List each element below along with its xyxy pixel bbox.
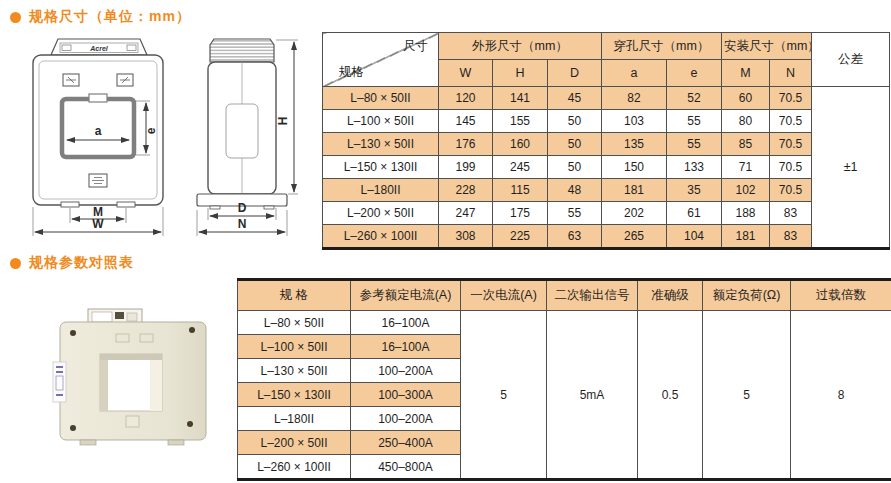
section-title-parameters: 规格参数对照表: [10, 254, 134, 272]
primary-current-cell: 5: [461, 311, 547, 480]
dim-cell: 50: [548, 133, 602, 156]
current-cell: 250–400A: [351, 431, 461, 455]
side-view-drawing: H D N: [180, 36, 306, 238]
spec-cell: L–180II: [238, 407, 351, 431]
dim-cell: 141: [493, 87, 548, 110]
dim-cell: 150: [602, 156, 667, 179]
col-header-m: M: [722, 60, 770, 87]
dim-cell: 48: [548, 179, 602, 202]
param-header-primary: 一次电流(A): [461, 280, 547, 311]
col-header-e: e: [667, 60, 722, 87]
current-cell: 100–300A: [351, 383, 461, 407]
param-header-secondary: 二次输出信号: [547, 280, 638, 311]
accuracy-class-cell: 0.5: [638, 311, 703, 480]
param-header-load: 额定负荷(Ω): [703, 280, 791, 311]
col-header-n: N: [770, 60, 812, 87]
dim-label-d: D: [238, 201, 247, 215]
dim-cell: 102: [722, 179, 770, 202]
current-cell: 450–800A: [351, 455, 461, 480]
dim-label-w: W: [92, 217, 104, 231]
dim-cell: 202: [602, 202, 667, 225]
photo-side-label: [53, 362, 66, 402]
dim-cell: 175: [493, 202, 548, 225]
group-header-mount: 安装尺寸（mm）: [722, 33, 812, 60]
current-cell: 16–100A: [351, 311, 461, 335]
group-header-hole: 穿孔尺寸（mm）: [602, 33, 722, 60]
terminal-screw-icon: [63, 74, 79, 86]
corner-dim-label: 尺寸: [403, 38, 428, 55]
dim-cell: 70.5: [770, 110, 812, 133]
dim-cell: 181: [602, 179, 667, 202]
spec-cell: L–80 × 50II: [323, 87, 439, 110]
dim-cell: 120: [439, 87, 493, 110]
dim-cell: 199: [439, 156, 493, 179]
spec-cell: L–100 × 50II: [323, 110, 439, 133]
dim-cell: 245: [493, 156, 548, 179]
group-header-outline: 外形尺寸（mm）: [439, 33, 602, 60]
dim-label-n: N: [238, 217, 247, 231]
tolerance-header: 公差: [812, 33, 890, 87]
section-title-dimensions: 规格尺寸（单位：mm）: [10, 8, 191, 26]
product-photo: [52, 306, 220, 454]
dim-cell: 176: [439, 133, 493, 156]
dim-cell: 50: [548, 156, 602, 179]
param-header-spec: 规 格: [238, 280, 351, 311]
rated-load-cell: 5: [703, 311, 791, 480]
dimension-table: 尺寸 规格 外形尺寸（mm） 穿孔尺寸（mm） 安装尺寸（mm） 公差 W H …: [322, 32, 890, 250]
dim-cell: 83: [770, 225, 812, 249]
dim-cell: 61: [667, 202, 722, 225]
param-header-overload: 过载倍数: [791, 280, 891, 311]
dim-cell: 85: [722, 133, 770, 156]
dim-cell: 80: [722, 110, 770, 133]
dim-cell: 50: [548, 110, 602, 133]
spec-cell: L–150 × 130II: [238, 383, 351, 407]
table-row: L–130 × 50II 176 160 50 135 55 85 70.5: [323, 133, 890, 156]
spec-cell: L–260 × 100II: [323, 225, 439, 249]
dim-cell: 70.5: [770, 156, 812, 179]
dim-cell: 135: [602, 133, 667, 156]
dim-cell: 265: [602, 225, 667, 249]
col-header-w: W: [439, 60, 493, 87]
col-header-h: H: [493, 60, 548, 87]
dim-cell: 70.5: [770, 133, 812, 156]
dim-cell: 83: [770, 202, 812, 225]
dim-label-h: H: [276, 117, 290, 126]
dim-cell: 55: [667, 133, 722, 156]
corner-header-cell: 尺寸 规格: [323, 33, 439, 87]
table-row: L–150 × 130II 199 245 50 150 133 71 70.5: [323, 156, 890, 179]
dim-cell: 155: [493, 110, 548, 133]
col-header-a: a: [602, 60, 667, 87]
current-cell: 100–200A: [351, 359, 461, 383]
section-title-text: 规格尺寸（单位：mm）: [29, 8, 191, 26]
dim-cell: 103: [602, 110, 667, 133]
dim-cell: 104: [667, 225, 722, 249]
col-header-d: D: [548, 60, 602, 87]
table-row: L–200 × 50II 247 175 55 202 61 188 83: [323, 202, 890, 225]
spec-cell: L–150 × 130II: [323, 156, 439, 179]
corner-spec-label: 规格: [339, 64, 364, 81]
dim-cell: 188: [722, 202, 770, 225]
table-row: L–180II 228 115 48 181 35 102 70.5: [323, 179, 890, 202]
dim-cell: 55: [667, 110, 722, 133]
dim-cell: 160: [493, 133, 548, 156]
spec-cell: L–80 × 50II: [238, 311, 351, 335]
terminal-screw-icon: [117, 74, 133, 86]
dim-cell: 55: [548, 202, 602, 225]
spec-cell: L–260 × 100II: [238, 455, 351, 480]
spec-cell: L–200 × 50II: [323, 202, 439, 225]
bullet-icon: [10, 12, 21, 23]
spec-cell: L–100 × 50II: [238, 335, 351, 359]
dim-cell: 60: [722, 87, 770, 110]
front-view-drawing: Acrel a e M W: [22, 36, 180, 238]
section-title-text: 规格参数对照表: [29, 254, 134, 272]
spec-cell: L–130 × 50II: [323, 133, 439, 156]
spec-cell: L–200 × 50II: [238, 431, 351, 455]
dim-label-a: a: [95, 124, 102, 138]
dim-cell: 82: [602, 87, 667, 110]
table-row: L–80 × 50II 16–100A 5 5mA 0.5 5 8: [238, 311, 891, 335]
dim-cell: 70.5: [770, 179, 812, 202]
bottom-terminal-icon: [89, 174, 107, 187]
table-row: L–100 × 50II 145 155 50 103 55 80 70.5: [323, 110, 890, 133]
dim-cell: 35: [667, 179, 722, 202]
dim-cell: 228: [439, 179, 493, 202]
current-cell: 100–200A: [351, 407, 461, 431]
secondary-output-cell: 5mA: [547, 311, 638, 480]
side-label-plate: [226, 104, 258, 158]
dim-cell: 145: [439, 110, 493, 133]
parameter-table: 规 格 参考额定电流(A) 一次电流(A) 二次输出信号 准确级 额定负荷(Ω)…: [237, 278, 891, 481]
dim-cell: 70.5: [770, 87, 812, 110]
brand-label: Acrel: [89, 45, 109, 52]
dim-cell: 52: [667, 87, 722, 110]
dim-cell: 181: [722, 225, 770, 249]
tolerance-value-cell: ±1: [812, 87, 890, 249]
dim-label-e: e: [144, 127, 158, 134]
table-row: L–260 × 100II 308 225 63 265 104 181 83: [323, 225, 890, 249]
dim-cell: 63: [548, 225, 602, 249]
dim-cell: 225: [493, 225, 548, 249]
dim-cell: 45: [548, 87, 602, 110]
current-cell: 16–100A: [351, 335, 461, 359]
dim-cell: 247: [439, 202, 493, 225]
bullet-icon: [10, 258, 21, 269]
spec-cell: L–130 × 50II: [238, 359, 351, 383]
dim-cell: 133: [667, 156, 722, 179]
dim-cell: 115: [493, 179, 548, 202]
dim-cell: 71: [722, 156, 770, 179]
table-row: L–80 × 50II 120 141 45 82 52 60 70.5 ±1: [323, 87, 890, 110]
spec-cell: L–180II: [323, 179, 439, 202]
param-header-accuracy: 准确级: [638, 280, 703, 311]
terminal-top: [210, 39, 274, 62]
overload-multiple-cell: 8: [791, 311, 891, 480]
param-header-ref-current: 参考额定电流(A): [351, 280, 461, 311]
dim-cell: 308: [439, 225, 493, 249]
